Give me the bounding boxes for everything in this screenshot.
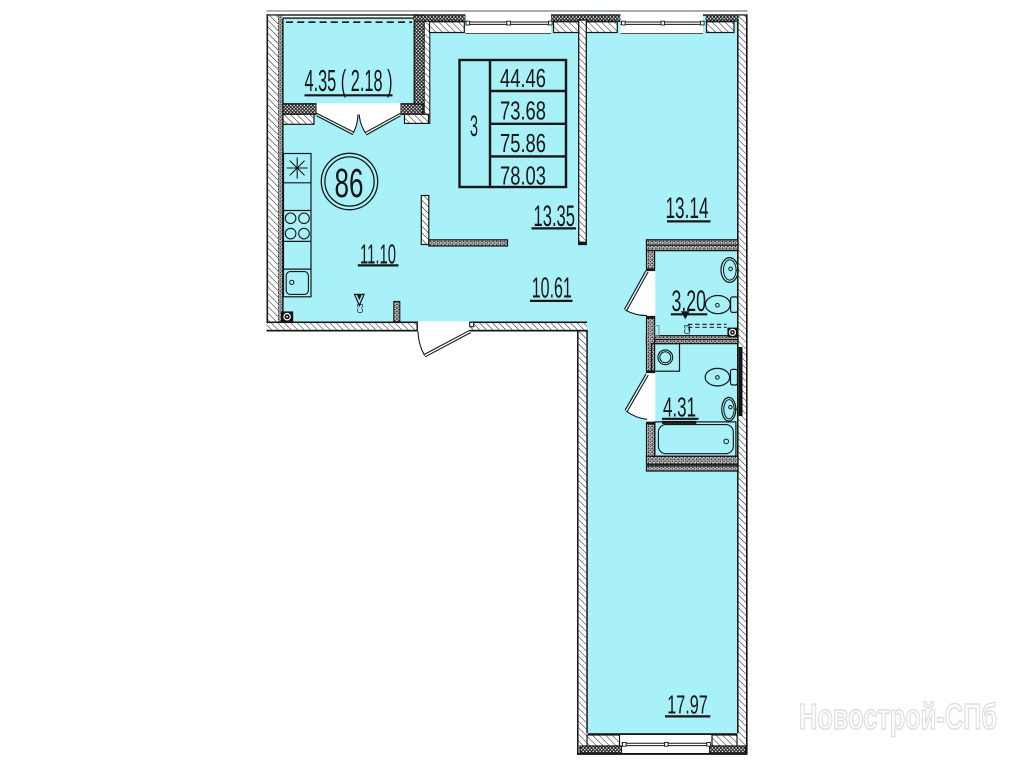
svg-text:Новострой-СПб: Новострой-СПб xyxy=(799,696,997,737)
svg-text:4.35 ( 2.18 ): 4.35 ( 2.18 ) xyxy=(305,63,393,98)
svg-text:С3: С3 xyxy=(682,324,692,334)
svg-text:17.97: 17.97 xyxy=(667,689,708,719)
svg-text:4.31: 4.31 xyxy=(663,391,696,422)
svg-text:3: 3 xyxy=(470,110,478,143)
svg-text:13.14: 13.14 xyxy=(666,192,709,225)
svg-text:10.61: 10.61 xyxy=(532,272,572,304)
svg-text:86: 86 xyxy=(335,160,364,206)
svg-text:3.20: 3.20 xyxy=(672,285,707,318)
svg-text:С3: С3 xyxy=(355,303,365,313)
svg-text:44.46: 44.46 xyxy=(500,65,546,93)
svg-text:75.86: 75.86 xyxy=(500,130,546,158)
svg-text:73.68: 73.68 xyxy=(500,98,546,126)
svg-text:78.03: 78.03 xyxy=(500,163,546,191)
